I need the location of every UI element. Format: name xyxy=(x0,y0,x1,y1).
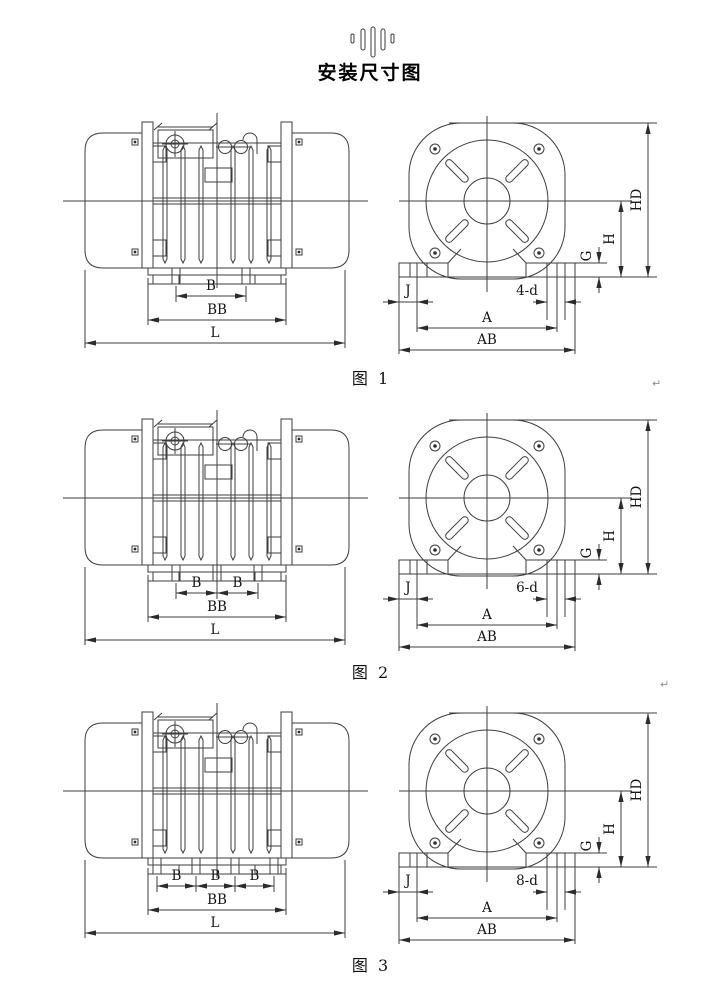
dimension-label-BB: BB xyxy=(207,599,227,615)
dimension-label-B: B xyxy=(211,868,221,884)
dimension-label-G: G xyxy=(579,548,595,559)
figure-1-caption: 图 1 xyxy=(0,365,706,389)
figure-2-drawing: BBBBLHDHGJ6-dAAB xyxy=(0,403,706,659)
figure-3: BBBBBLHDHGJ8-dAAB xyxy=(0,696,706,952)
dimension-label-J: J xyxy=(403,873,410,889)
line-break-mark: ↵ xyxy=(652,377,661,390)
dimension-label-L: L xyxy=(211,325,220,341)
figure-2: BBBBLHDHGJ6-dAAB xyxy=(0,403,706,659)
figure-1-drawing: BBBLHDHGJ4-dAAB xyxy=(0,106,706,362)
dimension-label-H: H xyxy=(602,530,618,542)
dimension-label-holes: 6-d xyxy=(516,580,538,596)
dimension-label-HD: HD xyxy=(629,779,645,802)
drawing-lines: BBBBBLHDHGJ8-dAAB xyxy=(63,703,657,944)
dimension-label-G: G xyxy=(579,251,595,262)
drawing-sheet: 安装尺寸图 BBBLHDHGJ4-dAAB 图 1 BBBBLHDHGJ6-dA… xyxy=(0,0,706,993)
dimension-label-AB: AB xyxy=(476,922,497,938)
dimension-label-H: H xyxy=(602,233,618,245)
drawing-lines: BBBLHDHGJ4-dAAB xyxy=(63,113,657,354)
dimension-label-HD: HD xyxy=(629,486,645,509)
dimension-label-holes: 4-d xyxy=(516,283,538,299)
dimension-label-L: L xyxy=(211,915,220,931)
dimension-label-A: A xyxy=(481,900,492,916)
dimension-label-A: A xyxy=(481,310,492,326)
dimension-label-B: B xyxy=(233,575,243,591)
dimension-label-B: B xyxy=(206,278,216,294)
dimension-label-holes: 8-d xyxy=(516,873,538,889)
dimension-label-J: J xyxy=(403,283,410,299)
dimension-label-BB: BB xyxy=(207,302,227,318)
figure-3-caption: 图 3 xyxy=(0,952,706,976)
dimension-label-J: J xyxy=(403,580,410,596)
brand-logo-icon xyxy=(347,25,397,61)
figure-3-drawing: BBBBBLHDHGJ8-dAAB xyxy=(0,696,706,952)
figure-2-caption: 图 2 xyxy=(0,659,706,683)
dimension-label-BB: BB xyxy=(207,892,227,908)
figure-1: BBBLHDHGJ4-dAAB xyxy=(0,106,706,362)
dimension-label-AB: AB xyxy=(476,332,497,348)
dimension-label-A: A xyxy=(481,607,492,623)
dimension-label-H: H xyxy=(602,823,618,835)
page-title: 安装尺寸图 xyxy=(0,58,706,85)
drawing-lines: BBBBLHDHGJ6-dAAB xyxy=(63,410,657,651)
dimension-label-B: B xyxy=(172,868,182,884)
line-break-mark: ↵ xyxy=(660,678,669,691)
dimension-label-B: B xyxy=(250,868,260,884)
dimension-label-AB: AB xyxy=(476,629,497,645)
dimension-label-G: G xyxy=(579,841,595,852)
dimension-label-B: B xyxy=(192,575,202,591)
dimension-label-L: L xyxy=(211,622,220,638)
dimension-label-HD: HD xyxy=(629,189,645,212)
